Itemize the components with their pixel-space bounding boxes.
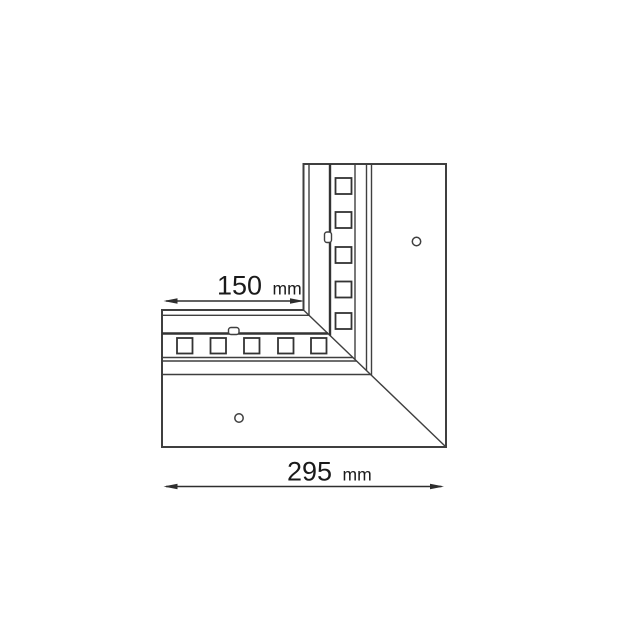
arrowhead-left-150 (164, 298, 178, 304)
arrowhead-right-150 (290, 298, 304, 304)
arrowhead-right-295 (430, 484, 444, 490)
dimension-value-150: 150 (217, 271, 262, 301)
led-square (336, 178, 352, 194)
dimension-inner-arm: 150 mm (164, 271, 305, 304)
corner-profile-drawing: 150 mm 295 mm (0, 0, 640, 640)
dimension-unit-295: mm (343, 465, 372, 485)
dimension-value-295: 295 (287, 457, 332, 487)
led-square (278, 338, 294, 354)
mounting-hole-vertical-arm (412, 237, 420, 245)
led-square (211, 338, 227, 354)
led-square (336, 247, 352, 263)
profile-body (162, 164, 446, 447)
led-square (336, 282, 352, 298)
led-squares-vertical (336, 178, 352, 329)
led-square (336, 313, 352, 329)
dimension-label-295: 295 mm (287, 457, 372, 487)
drawing-canvas: 150 mm 295 mm (0, 0, 640, 640)
profile-outer-outline (162, 164, 446, 447)
miter-line (304, 310, 447, 447)
clip-tab-horizontal (229, 328, 240, 335)
led-square (244, 338, 260, 354)
dimension-label-150: 150 mm (217, 271, 302, 301)
mounting-hole-horizontal-arm (235, 414, 243, 422)
clip-tab-vertical (325, 232, 332, 243)
led-square (311, 338, 327, 354)
led-square (336, 212, 352, 228)
dimension-unit-150: mm (273, 279, 302, 299)
vertical-arm-lines (330, 164, 372, 375)
dimension-outer-width: 295 mm (164, 457, 445, 490)
led-squares-horizontal (177, 338, 327, 354)
led-square (177, 338, 193, 354)
arrowhead-left-295 (164, 484, 178, 490)
